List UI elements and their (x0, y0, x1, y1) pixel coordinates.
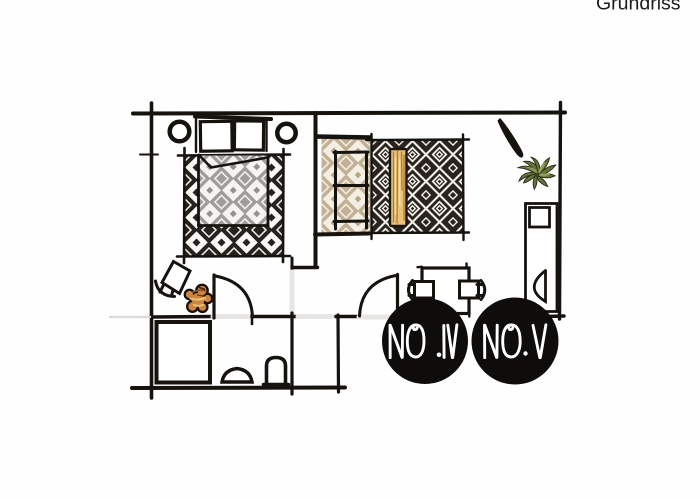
svg-text:Grundriss: Grundriss (596, 0, 681, 15)
